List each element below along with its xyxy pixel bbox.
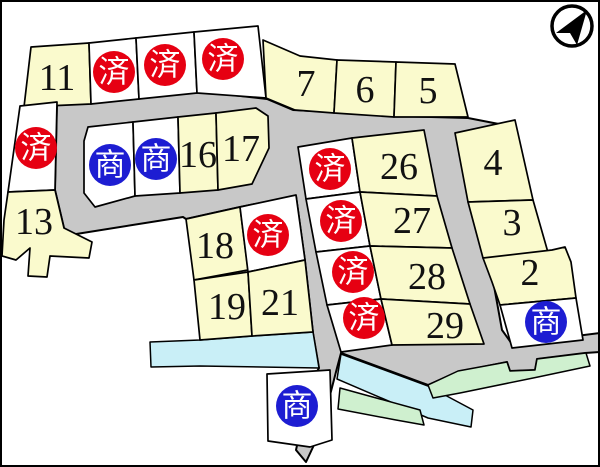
svg-text:済: 済 (21, 131, 52, 166)
svg-text:済: 済 (150, 48, 181, 83)
svg-text:済: 済 (338, 255, 369, 290)
north-arrow-icon (552, 6, 592, 46)
lot-21-label: 21 (261, 282, 299, 324)
sold-badge: 済 (15, 127, 57, 169)
lot-26-label: 26 (380, 146, 418, 188)
lot-2-label: 2 (521, 252, 540, 294)
sold-badge: 済 (343, 297, 385, 339)
svg-text:済: 済 (208, 42, 239, 77)
commercial-badge: 商 (276, 385, 318, 427)
lot-19-label: 19 (208, 286, 246, 328)
commercial-badge: 商 (89, 144, 131, 186)
sold-badge: 済 (320, 200, 362, 242)
svg-text:済: 済 (253, 218, 284, 253)
lot-18-label: 18 (196, 225, 234, 267)
lot-13-label: 13 (15, 201, 53, 243)
commercial-badge: 商 (525, 301, 567, 343)
sold-badge: 済 (332, 251, 374, 293)
lot-4-label: 4 (484, 142, 503, 184)
svg-text:済: 済 (99, 55, 130, 90)
commercial-badge: 商 (135, 138, 177, 180)
lot-5-label: 5 (419, 70, 438, 112)
lot-27-label: 27 (393, 200, 431, 242)
svg-text:商: 商 (282, 389, 313, 424)
lot-28-label: 28 (408, 256, 446, 298)
sold-badge: 済 (93, 51, 135, 93)
lot-7-label: 7 (297, 63, 316, 105)
svg-text:済: 済 (326, 204, 357, 239)
sold-badge: 済 (202, 38, 244, 80)
lot-3-label: 3 (503, 202, 522, 244)
sold-badge: 済 (309, 148, 351, 190)
lot-29-label: 29 (426, 305, 464, 347)
svg-text:商: 商 (531, 305, 562, 340)
lot-11-label: 11 (39, 57, 76, 99)
sold-badge: 済 (247, 214, 289, 256)
svg-text:商: 商 (141, 142, 172, 177)
lot-map: 済 済 済 済 済 済 済 済 済 商 商 商 商 11 13 16 17 18… (0, 0, 600, 467)
lot-17-label: 17 (222, 128, 260, 170)
svg-text:商: 商 (95, 148, 126, 183)
sold-badge: 済 (144, 44, 186, 86)
lot-6-label: 6 (356, 69, 375, 111)
lot-16-label: 16 (179, 134, 217, 176)
svg-text:済: 済 (315, 152, 346, 187)
svg-text:済: 済 (349, 301, 380, 336)
